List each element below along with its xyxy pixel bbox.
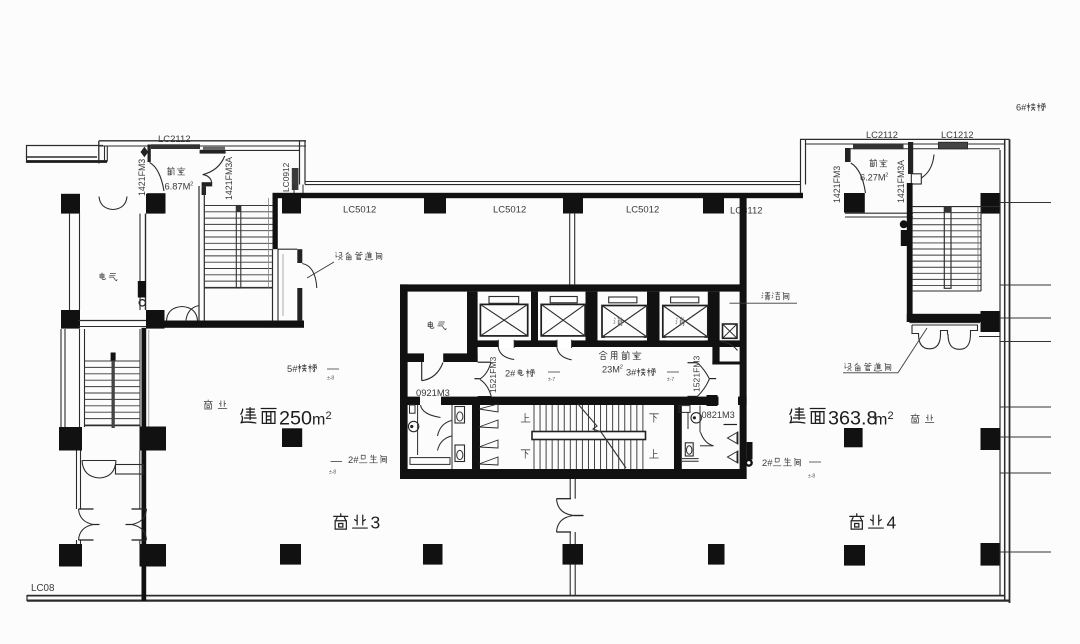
svg-text:6#: 6# xyxy=(1016,103,1027,113)
svg-text:m: m xyxy=(312,412,325,429)
svg-text:6.87M: 6.87M xyxy=(165,182,191,192)
svg-text:0921M3: 0921M3 xyxy=(416,387,450,398)
svg-text:1421FM3A: 1421FM3A xyxy=(224,157,234,200)
svg-text:2#: 2# xyxy=(505,369,516,379)
svg-text:3: 3 xyxy=(371,512,381,532)
svg-text:±-8: ±-8 xyxy=(329,470,336,476)
svg-text:LC08: LC08 xyxy=(31,583,55,594)
svg-text:m: m xyxy=(874,412,887,429)
svg-text:1421FM3A: 1421FM3A xyxy=(896,160,906,203)
svg-text:2: 2 xyxy=(326,410,332,422)
svg-text:LC5012: LC5012 xyxy=(493,205,526,216)
svg-text:0821M3: 0821M3 xyxy=(702,410,735,420)
svg-text:2#: 2# xyxy=(762,457,773,468)
svg-text:250: 250 xyxy=(279,408,312,430)
svg-text:23M: 23M xyxy=(602,365,620,375)
svg-text:4: 4 xyxy=(887,512,897,532)
svg-text:1521FM3: 1521FM3 xyxy=(692,355,702,392)
svg-text:3#: 3# xyxy=(626,368,637,378)
svg-text:±-8: ±-8 xyxy=(327,376,334,382)
svg-text:LC1212: LC1212 xyxy=(941,130,974,140)
svg-text:1421FM3: 1421FM3 xyxy=(137,159,147,196)
svg-text:LC2112: LC2112 xyxy=(158,134,191,145)
svg-text:LC5012: LC5012 xyxy=(626,205,659,216)
svg-text:363.8: 363.8 xyxy=(828,408,878,430)
svg-text:LC5012: LC5012 xyxy=(343,205,376,216)
svg-text:±-7: ±-7 xyxy=(667,377,674,383)
svg-text:6.27M: 6.27M xyxy=(860,173,886,183)
svg-text:LC0912: LC0912 xyxy=(281,162,291,192)
svg-text:2#: 2# xyxy=(348,454,359,465)
svg-text:1421FM3: 1421FM3 xyxy=(832,166,842,203)
svg-text:LC2112: LC2112 xyxy=(866,130,898,140)
svg-text:1521FM3: 1521FM3 xyxy=(488,356,498,393)
svg-text:5#: 5# xyxy=(287,363,298,374)
svg-text:2: 2 xyxy=(888,410,894,422)
svg-text:2: 2 xyxy=(885,173,888,179)
svg-text:±-8: ±-8 xyxy=(808,474,815,480)
svg-text:2: 2 xyxy=(190,182,193,188)
svg-text:±-7: ±-7 xyxy=(548,377,555,383)
svg-text:2: 2 xyxy=(620,365,623,371)
